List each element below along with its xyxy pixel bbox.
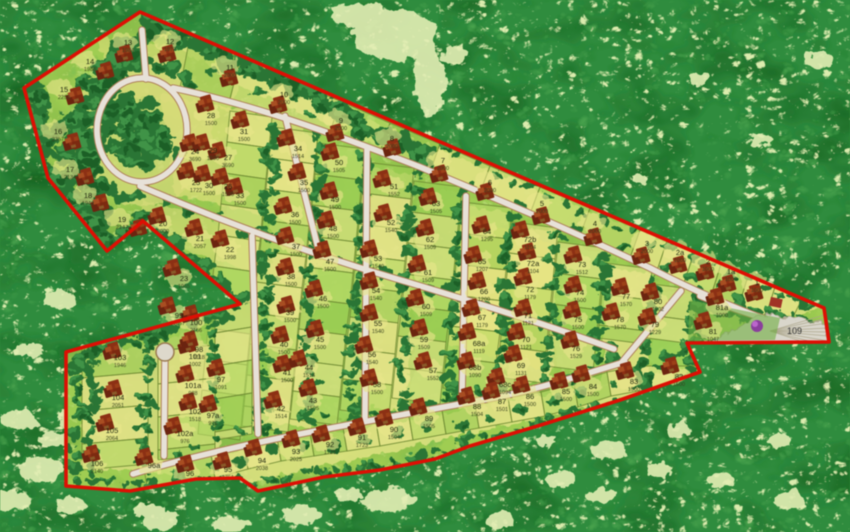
svg-text:1500: 1500 bbox=[281, 378, 293, 384]
svg-text:1988: 1988 bbox=[84, 67, 96, 73]
svg-text:16: 16 bbox=[54, 127, 62, 136]
svg-text:1540: 1540 bbox=[372, 264, 384, 270]
svg-text:1540: 1540 bbox=[370, 296, 382, 302]
svg-text:5: 5 bbox=[540, 199, 544, 208]
svg-text:61: 61 bbox=[424, 268, 432, 277]
svg-text:10: 10 bbox=[280, 90, 288, 99]
svg-text:104: 104 bbox=[112, 393, 125, 402]
svg-text:1500: 1500 bbox=[207, 156, 219, 162]
svg-text:976: 976 bbox=[180, 439, 189, 445]
svg-text:69: 69 bbox=[517, 361, 525, 370]
svg-text:100: 100 bbox=[190, 318, 203, 327]
svg-text:2064: 2064 bbox=[106, 436, 118, 442]
svg-text:1500: 1500 bbox=[298, 188, 310, 194]
svg-text:1505: 1505 bbox=[430, 209, 442, 215]
svg-text:49: 49 bbox=[331, 195, 339, 204]
svg-text:1295: 1295 bbox=[481, 237, 493, 243]
svg-text:1500: 1500 bbox=[572, 325, 584, 331]
svg-text:1500: 1500 bbox=[324, 267, 336, 273]
svg-text:1500: 1500 bbox=[673, 382, 685, 388]
svg-text:1121: 1121 bbox=[520, 345, 532, 351]
svg-text:1505: 1505 bbox=[222, 192, 234, 198]
svg-text:3690: 3690 bbox=[222, 163, 234, 169]
svg-text:98: 98 bbox=[195, 345, 203, 354]
svg-text:1509: 1509 bbox=[422, 278, 434, 284]
svg-text:1540: 1540 bbox=[366, 360, 378, 366]
svg-text:19: 19 bbox=[118, 215, 126, 224]
svg-text:1512: 1512 bbox=[576, 270, 588, 276]
svg-text:47: 47 bbox=[326, 257, 334, 266]
svg-text:102: 102 bbox=[189, 407, 202, 416]
svg-text:1500: 1500 bbox=[285, 282, 297, 288]
svg-text:62: 62 bbox=[426, 235, 434, 244]
svg-text:1500: 1500 bbox=[327, 234, 339, 240]
svg-text:89: 89 bbox=[425, 414, 433, 423]
svg-text:81: 81 bbox=[709, 327, 717, 336]
svg-text:1723: 1723 bbox=[356, 443, 368, 449]
svg-text:51: 51 bbox=[390, 182, 398, 191]
svg-text:96a: 96a bbox=[148, 461, 161, 470]
svg-text:102a: 102a bbox=[177, 429, 195, 438]
svg-text:59: 59 bbox=[420, 335, 428, 344]
svg-text:24: 24 bbox=[191, 147, 199, 156]
svg-text:101a: 101a bbox=[185, 381, 203, 390]
svg-text:1104: 1104 bbox=[527, 269, 539, 275]
svg-text:1540: 1540 bbox=[385, 228, 397, 234]
svg-text:1000: 1000 bbox=[751, 288, 763, 294]
svg-text:2147: 2147 bbox=[116, 225, 128, 231]
svg-text:64: 64 bbox=[483, 227, 491, 236]
svg-text:53: 53 bbox=[374, 254, 382, 263]
svg-text:2134: 2134 bbox=[64, 175, 76, 181]
svg-text:45: 45 bbox=[316, 335, 324, 344]
svg-text:13: 13 bbox=[124, 38, 132, 47]
svg-text:25: 25 bbox=[192, 178, 200, 187]
svg-text:38: 38 bbox=[287, 272, 295, 281]
svg-text:1998: 1998 bbox=[224, 255, 236, 261]
svg-text:1091: 1091 bbox=[215, 385, 227, 391]
svg-text:86: 86 bbox=[526, 392, 534, 401]
svg-text:1509: 1509 bbox=[420, 312, 432, 318]
svg-text:1002: 1002 bbox=[189, 362, 201, 368]
svg-text:33: 33 bbox=[236, 191, 244, 200]
svg-text:103: 103 bbox=[114, 353, 127, 362]
svg-text:68c: 68c bbox=[499, 380, 511, 389]
svg-text:1505: 1505 bbox=[333, 168, 345, 174]
svg-text:1529: 1529 bbox=[570, 354, 582, 360]
svg-text:74: 74 bbox=[576, 288, 584, 297]
svg-text:2057: 2057 bbox=[194, 244, 206, 250]
svg-text:2000: 2000 bbox=[589, 229, 601, 235]
svg-text:72a: 72a bbox=[527, 259, 540, 268]
svg-text:70: 70 bbox=[522, 335, 530, 344]
svg-text:2357: 2357 bbox=[52, 137, 64, 143]
svg-text:1509: 1509 bbox=[418, 345, 430, 351]
svg-text:2000: 2000 bbox=[641, 249, 653, 255]
svg-text:1505: 1505 bbox=[307, 406, 319, 412]
svg-text:42: 42 bbox=[277, 404, 285, 413]
svg-text:28: 28 bbox=[207, 111, 215, 120]
svg-text:93: 93 bbox=[292, 447, 300, 456]
svg-text:37: 37 bbox=[292, 242, 300, 251]
svg-text:1179: 1179 bbox=[476, 323, 488, 329]
svg-text:1570: 1570 bbox=[620, 302, 632, 308]
svg-text:1721: 1721 bbox=[324, 450, 336, 456]
svg-text:1965: 1965 bbox=[178, 284, 190, 290]
svg-text:41: 41 bbox=[283, 368, 291, 377]
svg-text:40: 40 bbox=[280, 340, 288, 349]
svg-text:2025: 2025 bbox=[290, 457, 302, 463]
svg-text:1500: 1500 bbox=[234, 201, 246, 207]
svg-text:96: 96 bbox=[186, 469, 194, 478]
svg-text:1504: 1504 bbox=[471, 412, 483, 418]
svg-text:1722: 1722 bbox=[190, 188, 202, 194]
svg-text:1505: 1505 bbox=[423, 424, 435, 430]
svg-text:1500: 1500 bbox=[329, 205, 341, 211]
svg-text:1500: 1500 bbox=[290, 252, 302, 258]
svg-text:988: 988 bbox=[188, 391, 197, 397]
svg-text:1131: 1131 bbox=[515, 371, 527, 377]
svg-text:8: 8 bbox=[390, 134, 394, 143]
svg-text:63: 63 bbox=[432, 199, 440, 208]
svg-text:44: 44 bbox=[305, 363, 313, 372]
svg-text:1207: 1207 bbox=[476, 267, 488, 273]
svg-text:48: 48 bbox=[329, 224, 337, 233]
svg-text:1502: 1502 bbox=[652, 307, 664, 313]
svg-text:95: 95 bbox=[224, 465, 232, 474]
svg-text:18: 18 bbox=[84, 191, 92, 200]
svg-text:20: 20 bbox=[159, 219, 167, 228]
svg-text:1984: 1984 bbox=[122, 48, 134, 54]
svg-text:92: 92 bbox=[326, 440, 334, 449]
svg-text:23: 23 bbox=[180, 274, 188, 283]
svg-text:1500: 1500 bbox=[560, 397, 572, 403]
svg-text:1500: 1500 bbox=[238, 137, 250, 143]
svg-text:1514: 1514 bbox=[303, 373, 315, 379]
svg-text:2a: 2a bbox=[676, 248, 685, 257]
svg-text:1500: 1500 bbox=[371, 390, 383, 396]
svg-text:65: 65 bbox=[478, 257, 486, 266]
svg-text:3690: 3690 bbox=[189, 157, 201, 163]
svg-text:97: 97 bbox=[217, 375, 225, 384]
svg-text:39: 39 bbox=[286, 308, 294, 317]
svg-text:2000: 2000 bbox=[335, 126, 347, 132]
svg-text:21: 21 bbox=[196, 234, 204, 243]
svg-text:75: 75 bbox=[574, 315, 582, 324]
svg-text:1540: 1540 bbox=[372, 329, 384, 335]
svg-text:2000: 2000 bbox=[437, 166, 449, 172]
svg-text:1229: 1229 bbox=[649, 330, 661, 336]
svg-text:2038: 2038 bbox=[256, 466, 268, 472]
svg-text:94: 94 bbox=[258, 456, 266, 465]
svg-text:3: 3 bbox=[645, 239, 649, 248]
svg-text:1570: 1570 bbox=[614, 325, 626, 331]
svg-text:78: 78 bbox=[616, 315, 624, 324]
svg-text:97a: 97a bbox=[207, 411, 220, 420]
svg-text:67: 67 bbox=[478, 313, 486, 322]
svg-text:60: 60 bbox=[422, 302, 430, 311]
svg-text:68b: 68b bbox=[469, 363, 482, 372]
svg-text:79: 79 bbox=[651, 320, 659, 329]
svg-text:1500: 1500 bbox=[203, 191, 215, 197]
svg-text:72b: 72b bbox=[524, 235, 537, 244]
svg-text:1500: 1500 bbox=[284, 318, 296, 324]
svg-text:1200: 1200 bbox=[478, 297, 490, 303]
svg-text:1500: 1500 bbox=[278, 350, 290, 356]
svg-text:1000: 1000 bbox=[702, 267, 714, 273]
svg-text:80: 80 bbox=[654, 297, 662, 306]
svg-text:1090: 1090 bbox=[469, 373, 481, 379]
svg-text:1500: 1500 bbox=[317, 304, 329, 310]
svg-text:26: 26 bbox=[224, 182, 232, 191]
svg-text:4: 4 bbox=[593, 219, 597, 228]
svg-text:1500: 1500 bbox=[289, 220, 301, 226]
svg-text:76: 76 bbox=[572, 344, 580, 353]
svg-text:2156: 2156 bbox=[190, 328, 202, 334]
svg-text:2000: 2000 bbox=[484, 188, 496, 194]
svg-text:1504: 1504 bbox=[388, 435, 400, 441]
svg-text:1942: 1942 bbox=[82, 201, 94, 207]
svg-text:1509: 1509 bbox=[424, 245, 436, 251]
svg-text:1972: 1972 bbox=[164, 47, 176, 53]
svg-text:2000: 2000 bbox=[278, 100, 290, 106]
svg-text:2000: 2000 bbox=[224, 73, 236, 79]
svg-text:1500: 1500 bbox=[587, 392, 599, 398]
svg-text:30: 30 bbox=[205, 181, 213, 190]
svg-text:1500: 1500 bbox=[314, 345, 326, 351]
svg-text:1500: 1500 bbox=[524, 402, 536, 408]
svg-text:1000: 1000 bbox=[674, 258, 686, 264]
svg-text:88: 88 bbox=[473, 402, 481, 411]
svg-text:1000: 1000 bbox=[716, 313, 728, 319]
svg-text:52: 52 bbox=[387, 218, 395, 227]
svg-text:1514: 1514 bbox=[275, 414, 287, 420]
svg-text:77: 77 bbox=[622, 292, 630, 301]
svg-text:1118: 1118 bbox=[193, 355, 204, 361]
svg-text:85: 85 bbox=[562, 387, 570, 396]
svg-text:81a: 81a bbox=[716, 303, 729, 312]
svg-text:105: 105 bbox=[106, 426, 119, 435]
svg-text:46: 46 bbox=[319, 294, 327, 303]
svg-text:1121: 1121 bbox=[522, 321, 534, 327]
svg-text:50: 50 bbox=[335, 158, 343, 167]
svg-text:90: 90 bbox=[390, 425, 398, 434]
svg-text:54: 54 bbox=[372, 286, 380, 295]
svg-text:56: 56 bbox=[368, 350, 376, 359]
svg-text:29: 29 bbox=[209, 146, 217, 155]
svg-text:66: 66 bbox=[480, 287, 488, 296]
svg-text:22: 22 bbox=[226, 245, 234, 254]
svg-text:91: 91 bbox=[358, 433, 366, 442]
svg-text:17: 17 bbox=[66, 165, 74, 174]
svg-text:34: 34 bbox=[294, 144, 302, 153]
svg-text:1179: 1179 bbox=[524, 295, 536, 301]
svg-text:2140: 2140 bbox=[91, 469, 103, 475]
svg-text:36: 36 bbox=[291, 210, 299, 219]
svg-text:109: 109 bbox=[787, 326, 802, 336]
svg-text:12: 12 bbox=[166, 37, 174, 46]
svg-text:1500: 1500 bbox=[574, 298, 586, 304]
svg-text:1514: 1514 bbox=[292, 154, 304, 160]
svg-text:1501: 1501 bbox=[496, 407, 508, 413]
svg-text:31: 31 bbox=[240, 127, 248, 136]
svg-text:15: 15 bbox=[60, 85, 68, 94]
svg-text:58: 58 bbox=[373, 380, 381, 389]
svg-text:57: 57 bbox=[429, 366, 437, 375]
svg-text:1552: 1552 bbox=[427, 376, 439, 382]
svg-text:1119: 1119 bbox=[473, 349, 484, 355]
svg-text:35: 35 bbox=[300, 178, 308, 187]
svg-text:1518: 1518 bbox=[189, 417, 201, 423]
svg-text:1500: 1500 bbox=[205, 121, 217, 127]
svg-text:68a: 68a bbox=[473, 339, 486, 348]
svg-text:14: 14 bbox=[86, 57, 94, 66]
svg-text:55: 55 bbox=[374, 319, 382, 328]
svg-text:71: 71 bbox=[524, 311, 532, 320]
svg-text:1104: 1104 bbox=[524, 245, 536, 251]
svg-text:7: 7 bbox=[441, 156, 445, 165]
svg-text:72: 72 bbox=[526, 285, 534, 294]
svg-text:2000: 2000 bbox=[536, 209, 548, 215]
svg-text:87: 87 bbox=[498, 397, 506, 406]
svg-text:1552: 1552 bbox=[388, 192, 400, 198]
svg-text:106: 106 bbox=[91, 459, 104, 468]
svg-text:1946: 1946 bbox=[114, 363, 126, 369]
svg-text:2259: 2259 bbox=[58, 95, 70, 101]
svg-text:43: 43 bbox=[309, 396, 317, 405]
svg-text:27: 27 bbox=[224, 153, 232, 162]
svg-text:1094: 1094 bbox=[499, 390, 511, 396]
svg-text:2051: 2051 bbox=[112, 403, 124, 409]
svg-text:9: 9 bbox=[339, 116, 343, 125]
svg-text:976: 976 bbox=[208, 421, 217, 427]
svg-text:83: 83 bbox=[630, 377, 638, 386]
svg-text:11: 11 bbox=[226, 63, 234, 72]
svg-text:6: 6 bbox=[488, 178, 492, 187]
svg-text:73: 73 bbox=[578, 260, 586, 269]
svg-text:84: 84 bbox=[589, 382, 597, 391]
svg-text:2000: 2000 bbox=[386, 144, 398, 150]
svg-text:1000: 1000 bbox=[725, 277, 737, 283]
